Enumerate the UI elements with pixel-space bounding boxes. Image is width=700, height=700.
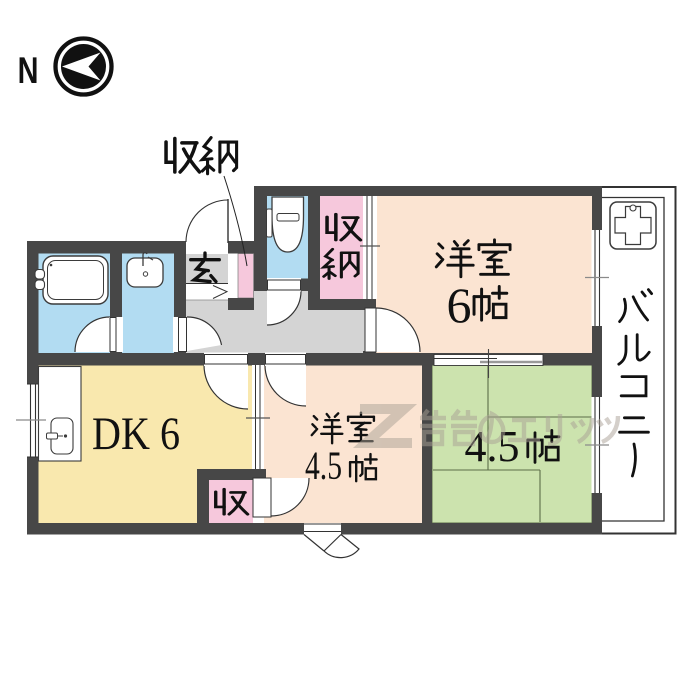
svg-text:N: N (18, 51, 39, 92)
svg-text:6: 6 (447, 277, 472, 333)
svg-text:4.5: 4.5 (305, 443, 342, 488)
svg-text:DK 6: DK 6 (92, 408, 180, 460)
